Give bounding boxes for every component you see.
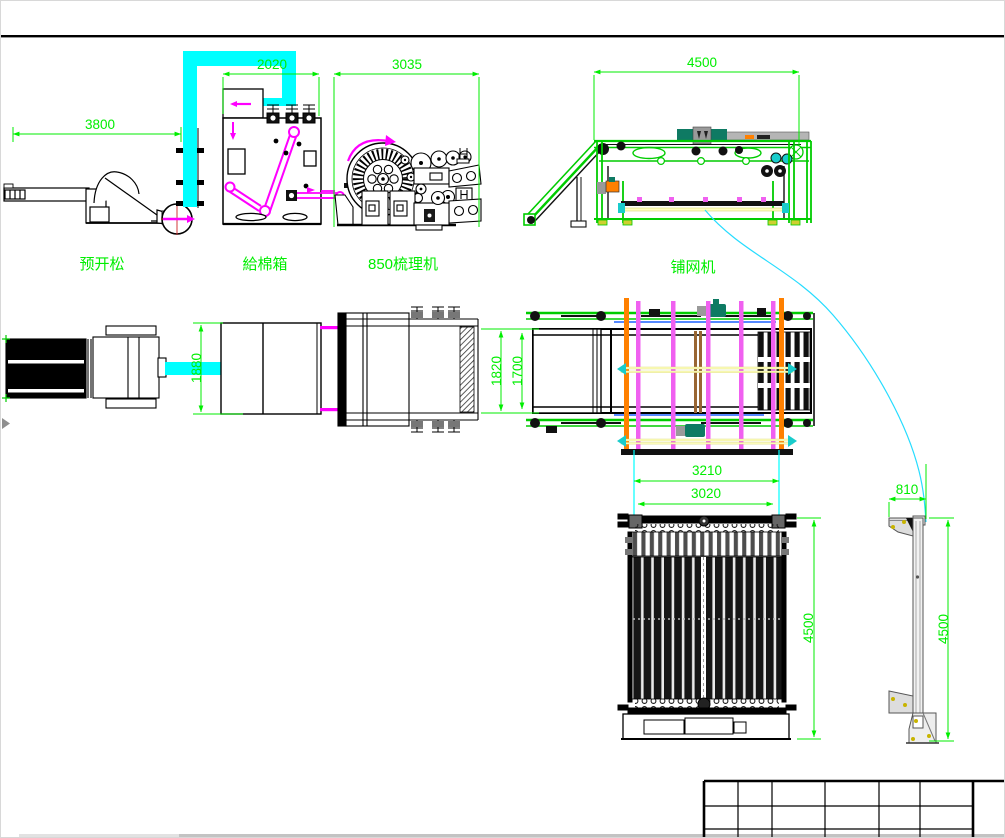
cad-canvas: 3800 2020 3035 4500 1880 1820 xyxy=(0,0,1005,838)
machine-labels: 预开松 給棉箱 850梳理机 铺网机 xyxy=(79,256,715,276)
dim-3035-value: 3035 xyxy=(392,57,422,72)
dim-810-value: 810 xyxy=(896,482,919,497)
dim-3210: 3210 xyxy=(634,463,779,481)
carding-machine-side-view xyxy=(321,135,481,230)
carding-plan-view xyxy=(338,307,478,432)
feed-box-plan-view xyxy=(221,323,338,414)
lapper-plan-view xyxy=(526,298,814,455)
slat-apron xyxy=(631,557,783,699)
dim-1700: 1700 xyxy=(510,333,525,409)
dim-1880-value: 1880 xyxy=(189,353,204,383)
dim-4500-profile-value: 4500 xyxy=(936,614,951,644)
lapper-column xyxy=(913,518,923,740)
dim-3210-value: 3210 xyxy=(692,463,722,478)
title-block xyxy=(704,781,1005,838)
upper-comb xyxy=(631,532,783,556)
motor xyxy=(606,181,619,192)
pre-opener-plan-view xyxy=(2,326,166,408)
dim-1700-value: 1700 xyxy=(510,356,525,386)
label-carding-machine: 850梳理机 xyxy=(368,256,438,273)
dim-2020-value: 2020 xyxy=(257,57,287,72)
dim-3800-value: 3800 xyxy=(85,117,115,132)
dim-1820-value: 1820 xyxy=(489,356,504,386)
pre-opener-side-view xyxy=(4,172,195,235)
incline-conveyor xyxy=(524,141,603,227)
top-bolts xyxy=(267,105,315,123)
label-pre-opener: 预开松 xyxy=(79,256,124,273)
label-lapper: 铺网机 xyxy=(670,259,715,276)
doffer-hatch xyxy=(460,327,474,412)
pan-left-arrow-icon[interactable] xyxy=(2,418,10,429)
dim-4500-front: 4500 xyxy=(797,518,821,739)
dim-4500-front-value: 4500 xyxy=(801,613,816,643)
dim-3020-value: 3020 xyxy=(691,486,721,501)
label-feed-box: 給棉箱 xyxy=(242,256,287,273)
web-path-curve xyxy=(705,210,926,522)
lapper-side-view xyxy=(524,127,811,227)
lapper-profile-view xyxy=(889,516,939,743)
dim-4500-top-value: 4500 xyxy=(687,55,717,70)
dim-3800: 3800 xyxy=(13,117,181,142)
dim-810: 810 xyxy=(889,464,926,519)
feed-box-side-view xyxy=(223,89,337,224)
dim-3020: 3020 xyxy=(638,486,773,504)
sheet-border xyxy=(1,35,1005,838)
dim-4500-profile: 4500 xyxy=(929,518,954,741)
